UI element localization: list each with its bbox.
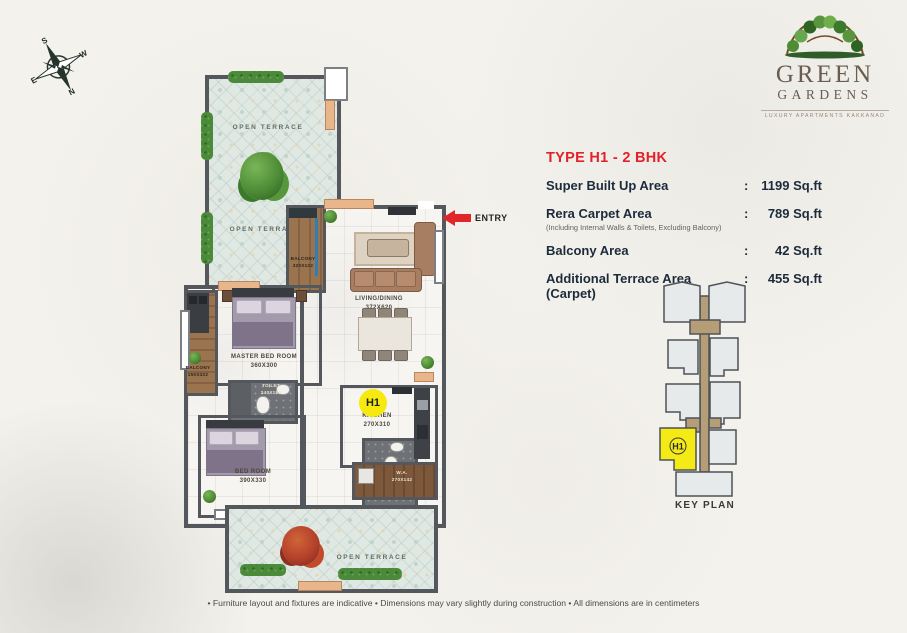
arrow-bar [455, 214, 471, 222]
info-separator: : [744, 206, 756, 221]
hedge-plant [228, 71, 284, 83]
living-balcony [286, 205, 326, 293]
wall-lintel [298, 581, 342, 591]
shower-area [231, 383, 251, 415]
room-dim: 360X300 [251, 363, 278, 369]
wardrobe-door [199, 296, 207, 304]
stove [417, 425, 428, 439]
room-name: BALCONY [291, 256, 316, 261]
dining-table [358, 317, 412, 351]
entry-label: ENTRY [475, 213, 508, 223]
room-label-toilet-master: TOILET 240X150 [250, 383, 292, 397]
bed-headboard [206, 420, 264, 428]
sofa-cushion [396, 271, 416, 287]
compass-bottom-letter: N [67, 87, 77, 98]
logo-title-line1: GREEN [750, 62, 900, 87]
entry-door-gap [418, 201, 434, 209]
room-dim: 150X322 [188, 372, 209, 377]
coffee-table [367, 239, 409, 257]
bed-pillow [236, 300, 262, 314]
info-label: Balcony Area [546, 243, 744, 258]
disclaimer-text: • Furniture layout and fixtures are indi… [0, 598, 907, 608]
hedge-plant [240, 564, 286, 576]
room-dim: 270X310 [364, 422, 391, 428]
info-separator: : [744, 243, 756, 258]
dining-chair [362, 350, 376, 361]
logo-tree-arch-icon [777, 12, 873, 62]
info-note: (Including Internal Walls & Toilets, Exc… [546, 223, 822, 232]
info-label: Super Built Up Area [546, 178, 744, 193]
entry-arrow-icon [442, 210, 471, 226]
compass-top-letter: S [40, 35, 50, 46]
kitchen-sink [417, 400, 428, 410]
potted-plant [203, 490, 216, 503]
room-dim: 390X330 [240, 478, 267, 484]
room-dim: 240X150 [261, 390, 282, 395]
compass-left-letter: E [30, 75, 40, 86]
dining-chair [394, 350, 408, 361]
info-label: Rera Carpet Area [546, 206, 744, 221]
room-name: BED ROOM [235, 469, 271, 475]
hedge-plant [201, 212, 213, 264]
potted-plant [324, 210, 337, 223]
wall-lintel [414, 372, 434, 382]
bed-pillow [265, 300, 291, 314]
hedge-plant [338, 568, 402, 580]
potted-plant [421, 356, 434, 369]
bed-pillow [209, 431, 233, 445]
washing-machine [358, 468, 374, 484]
open-terrace-bottom [225, 505, 438, 593]
logo-tagline: Luxury Apartments Kakkanad [761, 110, 889, 119]
room-label-work-area: W.A. 270X142 [376, 470, 428, 484]
planter-box [289, 208, 317, 218]
room-name: MASTER BED ROOM [231, 354, 297, 360]
nightstand [296, 290, 307, 302]
brand-logo: GREEN GARDENS Luxury Apartments Kakkanad [750, 12, 900, 122]
room-dim: 320X122 [293, 263, 314, 268]
wall-lintel [324, 199, 374, 209]
key-plan-unit-label: H1 [672, 442, 684, 452]
key-plan-caption: KEY PLAN [640, 500, 770, 511]
unit-type-title: TYPE H1 - 2 BHK [546, 150, 822, 166]
potted-plant [189, 352, 201, 364]
room-name: BALCONY [186, 365, 211, 370]
wc-fixture [256, 396, 270, 414]
arrow-head [442, 210, 455, 226]
red-plant [282, 526, 320, 566]
brochure-page: S N W E GREEN GARDENS Luxury Apartments … [0, 0, 907, 633]
floor-plan: OPEN TERRACE OPEN TERRACE BALCONY 320X12… [178, 60, 498, 600]
room-name: TOILET [262, 383, 280, 388]
dining-chair [378, 350, 392, 361]
info-row-rera-carpet: Rera Carpet Area : 789 Sq.ft [546, 206, 822, 221]
unit-badge: H1 [359, 389, 387, 417]
room-dim: 270X142 [392, 477, 413, 482]
compass-right-letter: W [78, 48, 89, 60]
upper-cabinet [392, 387, 412, 394]
tv-unit [388, 207, 416, 215]
logo-title-line2: GARDENS [750, 87, 900, 104]
sofa-cushion [354, 271, 374, 287]
wardrobe-door [189, 296, 197, 304]
info-value: 1199 Sq.ft [756, 178, 822, 193]
entry-marker: ENTRY [442, 210, 508, 226]
room-name: LIVING/DINING [355, 296, 403, 302]
compass-icon: S N W E [15, 23, 102, 110]
tree-plant [240, 152, 284, 200]
bed-pillow [235, 431, 259, 445]
room-label-bedroom: BED ROOM 390X330 [218, 468, 288, 486]
terrace-label: OPEN TERRACE [208, 124, 328, 131]
hedge-plant [201, 112, 213, 160]
sofa-cushion [375, 271, 395, 287]
info-value: 42 Sq.ft [756, 243, 822, 258]
info-value: 789 Sq.ft [756, 206, 822, 221]
window-frame [180, 310, 190, 370]
kitchen-counter [414, 388, 430, 459]
info-row-balcony: Balcony Area : 42 Sq.ft [546, 243, 822, 258]
room-label-master: MASTER BED ROOM 360X300 [220, 353, 308, 371]
terrace-label: OPEN TERRACE [330, 554, 414, 561]
info-separator: : [744, 178, 756, 193]
bed-headboard [232, 288, 294, 297]
room-label-balcony-master: BALCONY 150X322 [180, 365, 216, 379]
room-name: W.A. [396, 470, 407, 475]
key-plan-diagram: H1 [640, 280, 770, 498]
window-frame [434, 230, 444, 284]
info-row-super-built-up: Super Built Up Area : 1199 Sq.ft [546, 178, 822, 193]
terrace-column [324, 67, 348, 101]
bed-blanket [233, 322, 293, 346]
room-label-balcony-living: BALCONY 320X122 [282, 256, 324, 270]
